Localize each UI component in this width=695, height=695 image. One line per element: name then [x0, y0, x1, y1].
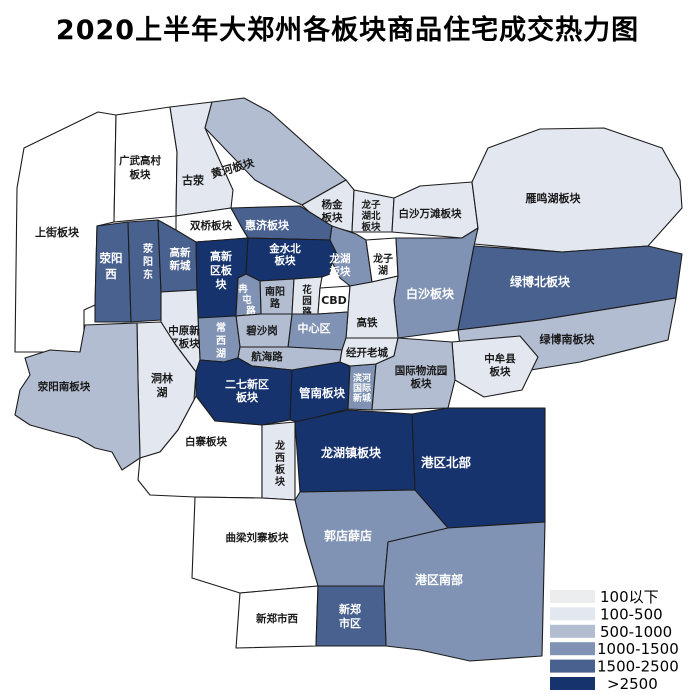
region-label: 西 — [275, 452, 285, 464]
region-shape — [472, 128, 682, 252]
region-label: 路 — [270, 297, 281, 310]
region-label: 块 — [216, 277, 228, 291]
region-label: 航海路 — [251, 350, 283, 363]
region-label: 湖 — [157, 385, 168, 399]
region-binhe: 滨河 国际 新城 — [348, 364, 376, 410]
region-label: 白沙万滩板块 — [399, 207, 462, 220]
region-label: 碧沙岗 — [245, 324, 278, 337]
region-longhubankuai: 龙湖 板块 — [329, 226, 373, 286]
region-nanyanglu: 南阳 路 — [260, 279, 294, 314]
region-label: 国际 — [353, 383, 371, 394]
region-label: 花 — [302, 284, 312, 296]
region-label: 龙子 — [360, 199, 381, 211]
region-label: 新郑市西 — [256, 612, 298, 625]
region-label: 古荥 — [182, 173, 204, 187]
region-label: 市区 — [339, 616, 361, 630]
region-label: CBD — [321, 294, 347, 307]
legend-label: 100以下 — [600, 588, 659, 606]
region-label: 二七新区 — [225, 377, 269, 391]
region-label: 洞林 — [151, 371, 173, 385]
region-label: 雁鸣湖板块 — [526, 191, 582, 205]
legend-swatch — [550, 677, 595, 690]
region-label: 板块 — [236, 390, 259, 404]
choropleth-map: 上街板块 广武高村 板块 古荥 黄河板块 双桥板块 杨金 板块 龙子 湖北 板块… — [0, 0, 695, 695]
region-label: 杨金 — [322, 198, 343, 211]
region-label: 绿博北板块 — [510, 274, 571, 289]
legend-swatch — [550, 590, 595, 603]
legend-label: 1500-2500 — [597, 658, 679, 676]
region-label: 中心区 — [298, 321, 331, 335]
legend-label: >2500 — [607, 675, 658, 693]
region-label: 湖 — [378, 264, 388, 277]
legend-swatch — [550, 642, 595, 655]
region-baishawantan: 白沙万滩板块 — [392, 182, 478, 238]
region-label: 龙 — [274, 439, 285, 452]
legend-label: 1000-1500 — [597, 640, 679, 658]
region-label: 南阳 — [265, 285, 285, 298]
region-longzihu: 龙子 湖 — [366, 238, 398, 282]
region-label: 荥阳 — [100, 251, 123, 265]
region-label: 郭店薛店 — [324, 528, 372, 543]
region-shape — [384, 522, 545, 661]
region-label: 港区北部 — [421, 455, 472, 470]
region-yingyangdong: 荥 阳 东 — [128, 220, 161, 322]
region-label: 高铁 — [357, 316, 378, 329]
region-longxi: 龙 西 板 块 — [262, 422, 295, 500]
region-label: 管南板块 — [299, 386, 345, 400]
region-label: 块 — [275, 475, 286, 488]
region-label: 双桥板块 — [189, 219, 232, 232]
legend-label: 100-500 — [600, 605, 663, 623]
region-label: 港区南部 — [415, 572, 463, 587]
region-jinshuibei: 金水北 板块 — [246, 238, 338, 281]
region-shape — [316, 586, 386, 646]
legend-swatch — [550, 660, 595, 673]
region-label: 金水北 — [268, 242, 301, 255]
region-label: 西 — [105, 267, 117, 281]
legend-swatch — [550, 607, 595, 620]
region-label: 板 — [275, 463, 286, 476]
region-label: 东 — [143, 268, 153, 281]
region-cbd: CBD — [318, 286, 350, 314]
region-label: 阳 — [143, 256, 153, 268]
region-label: 湖北 — [361, 210, 381, 222]
region-longzihubei: 龙子 湖北 板块 — [352, 190, 394, 233]
region-label: 园 — [302, 296, 312, 307]
region-huayuanlu: 花 园 路 — [292, 277, 322, 318]
region-label: 龙子 — [372, 252, 393, 265]
region-label: 区板 — [210, 263, 233, 277]
region-label: 经开老城 — [346, 346, 388, 359]
legend-swatch — [550, 625, 595, 638]
region-label: 白沙板块 — [406, 286, 455, 301]
region-longhuzhen: 龙湖镇板块 — [295, 410, 415, 492]
region-label: 国际物流园 — [395, 364, 448, 377]
region-label: 白寨板块 — [185, 435, 227, 448]
region-yingyangxi: 荥阳 西 — [95, 222, 131, 322]
region-label: 龙湖镇板块 — [321, 445, 382, 460]
legend: 100以下 100-500 500-1000 1000-1500 1500-25… — [550, 588, 679, 693]
region-xinzhengxi: 新郑市西 — [236, 586, 318, 648]
region-label: 冉 — [238, 283, 248, 295]
region-label: 屯 — [242, 294, 252, 306]
region-label: 板块 — [411, 377, 432, 390]
region-bishagang: 碧沙岗 — [236, 314, 292, 347]
region-rantunlu: 冉 屯 路 — [236, 274, 261, 317]
region-label: 板块 — [361, 221, 381, 233]
region-gangqunanbu: 港区南部 — [384, 522, 545, 661]
region-label: 新城 — [170, 259, 191, 272]
region-guangwugaocun: 广武高村 板块 — [114, 107, 177, 222]
region-zhongmouxian: 中牟县 板块 — [452, 336, 538, 397]
region-label: 绿博南板块 — [540, 332, 596, 346]
region-label: 板块 — [130, 168, 151, 181]
region-gaotie: 高铁 — [346, 276, 398, 338]
region-xinzhengshiqu: 新郑 市区 — [316, 586, 386, 646]
region-label: 高新 — [170, 246, 191, 259]
region-label: 板块 — [275, 254, 296, 267]
region-label: 荥 — [143, 242, 153, 255]
region-label: 新郑 — [339, 602, 361, 616]
region-label: 广武高村 — [119, 154, 161, 167]
region-label: 中原新 — [168, 324, 200, 337]
region-label: 龙湖 — [329, 252, 351, 265]
region-label: 常 — [216, 321, 226, 334]
region-label: 惠济板块 — [245, 218, 290, 232]
region-label: 高新 — [210, 249, 232, 263]
region-zhongxinqu: 中心区 — [288, 312, 348, 350]
region-label: 板块 — [490, 365, 511, 378]
region-label: 西 — [216, 335, 226, 347]
region-yanminghu: 雁鸣湖板块 — [472, 128, 682, 252]
region-label: 曲梁刘寨板块 — [226, 531, 289, 544]
region-label: 荥阳南板块 — [38, 380, 91, 393]
region-changxihu: 常 西 湖 — [198, 316, 240, 362]
region-label: 上街板块 — [35, 225, 80, 239]
legend-label: 500-1000 — [600, 623, 672, 641]
region-label: 新城 — [353, 392, 371, 404]
region-label: 中牟县 — [484, 352, 516, 365]
region-label: 板块 — [330, 265, 351, 278]
region-label: 湖 — [216, 347, 226, 360]
region-label: 滨河 — [353, 372, 371, 384]
